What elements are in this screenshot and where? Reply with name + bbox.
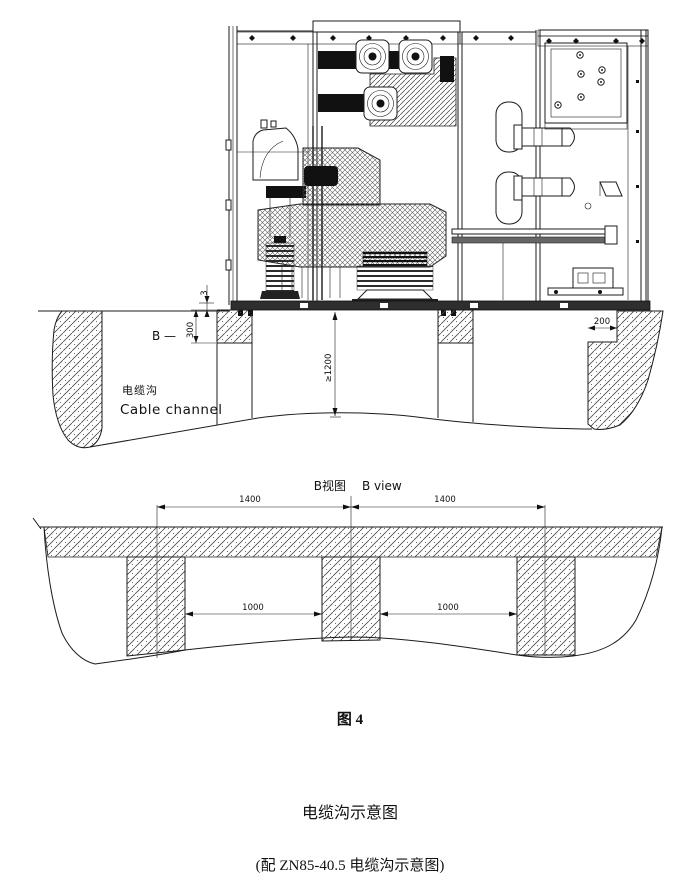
drawing-sheet: 3 300 B — ≥1200 200 电缆沟 — [0, 0, 700, 892]
dim-foundation-text: 300 — [186, 322, 196, 338]
support-insulator-left — [260, 236, 300, 299]
busbar-bushings — [318, 40, 456, 126]
support-insulator-right — [352, 252, 438, 304]
figure-label: 图 4 — [337, 711, 364, 728]
figure-subtitle: (配 ZN85-40.5 电缆沟示意图) — [256, 856, 445, 874]
cabinet-left-door — [226, 26, 237, 305]
dim-opening-left-text: 1000 — [242, 603, 264, 613]
dim-foundation-300: 300 — [186, 310, 216, 343]
technical-drawing: 3 300 B — ≥1200 200 电缆沟 — [0, 0, 700, 892]
trench-wall-3 — [517, 557, 575, 655]
concrete-band — [44, 527, 662, 557]
dim-trench-depth-text: ≥1200 — [324, 354, 334, 383]
foundation-pier-right — [438, 310, 473, 343]
dim-gap-text: 3 — [200, 290, 210, 295]
figure-title: 电缆沟示意图 — [302, 803, 398, 822]
switchgear-cross-section — [226, 21, 650, 316]
dim-span-right-text: 1400 — [434, 495, 456, 505]
dim-span-left-text: 1400 — [239, 495, 261, 505]
captions: 图 4 电缆沟示意图 (配 ZN85-40.5 电缆沟示意图) — [256, 711, 445, 874]
b-view-title-zh: B视图 — [314, 478, 346, 493]
earth-mass-right — [588, 311, 663, 430]
channel-label-en: Cable channel — [120, 402, 223, 418]
trench-wall-1 — [127, 557, 185, 656]
dim-ledge-text: 200 — [594, 317, 610, 327]
dim-opening-right-text: 1000 — [437, 603, 459, 613]
trench-wall-2 — [322, 557, 380, 641]
b-view-title-en: B view — [362, 479, 402, 493]
dim-gap-3: 3 — [199, 285, 214, 317]
channel-label-zh: 电缆沟 — [122, 384, 158, 397]
section-label-b: B — — [152, 329, 176, 343]
dim-trench-depth: ≥1200 — [324, 312, 341, 417]
foundation-pier-left — [217, 310, 252, 343]
earth-mass-left — [52, 311, 102, 448]
rear-bushings — [496, 102, 575, 224]
dim-ledge-200: 200 — [588, 317, 617, 331]
cable-compartment — [452, 226, 623, 300]
b-view-plan: B视图 B view 1400 1400 — [33, 478, 663, 664]
